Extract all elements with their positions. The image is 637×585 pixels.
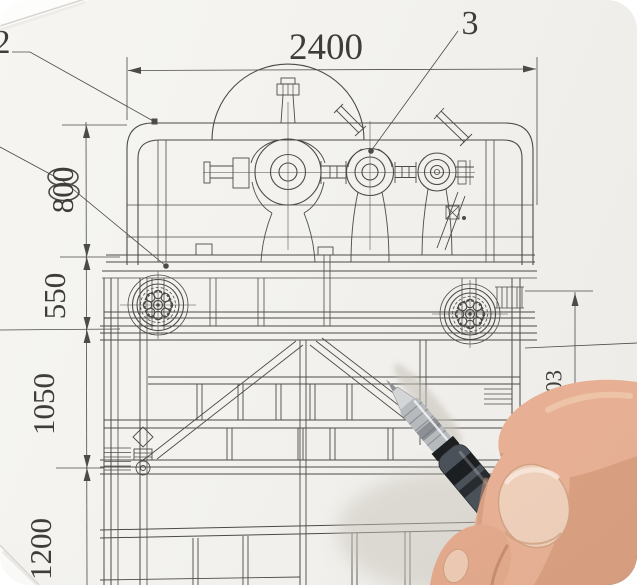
part-label-3: 3 xyxy=(462,5,479,42)
dim-1050-label: 1050 xyxy=(26,373,61,435)
leader-lines xyxy=(0,31,458,269)
left-bearing xyxy=(120,271,196,339)
technical-drawing-canvas: 2400 3 2 800 550 1050 1200 1403 xyxy=(0,0,637,585)
right-spring-stack xyxy=(484,384,512,404)
gearbox xyxy=(203,102,475,262)
deck-band xyxy=(102,244,537,278)
dim-2400-label: 2400 xyxy=(289,27,363,68)
dim-800-label: 800 xyxy=(45,167,80,214)
hood-enclosure xyxy=(127,64,533,265)
dim-550-label: 550 xyxy=(37,273,72,320)
photo-of-technical-drawing: 2400 3 2 800 550 1050 1200 1403 xyxy=(0,0,637,585)
dim-width-top xyxy=(127,57,537,205)
dim-1200-label: 1200 xyxy=(23,518,58,580)
